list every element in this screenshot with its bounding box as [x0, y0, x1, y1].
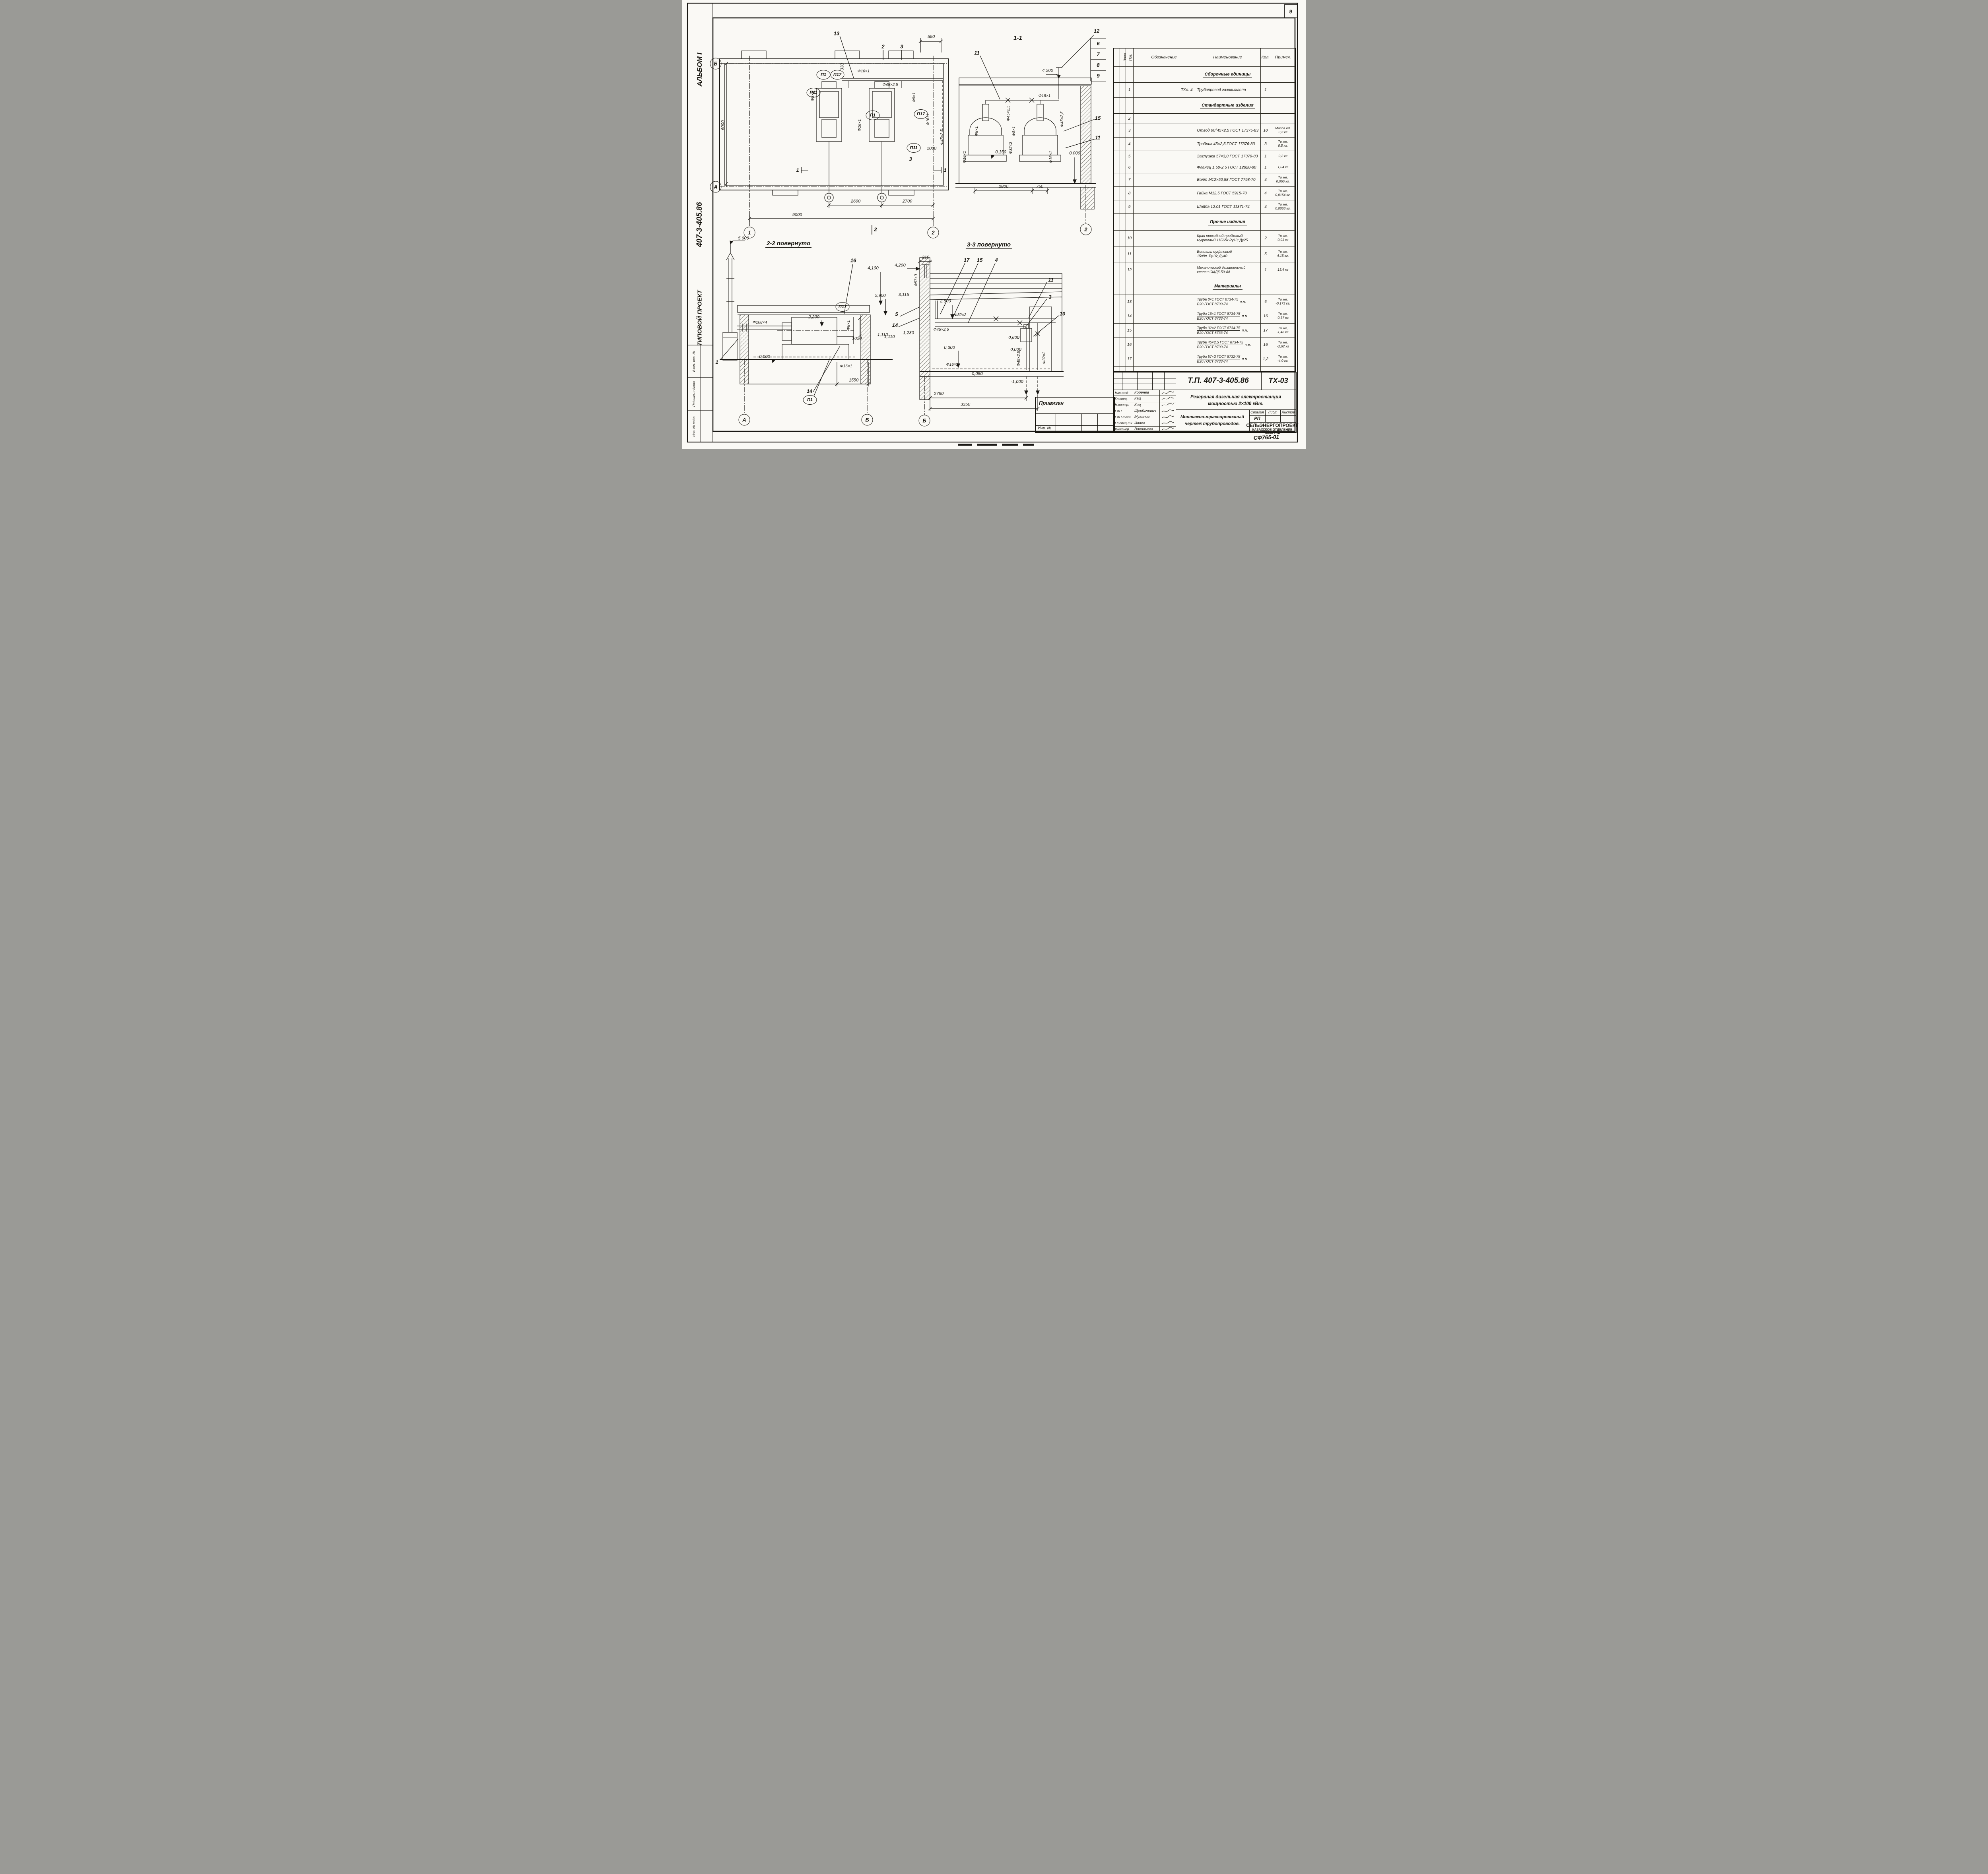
- spec-cell: Труба 32×2 ГОСТ 8734-75В20 ГОСТ 8733-74п…: [1195, 323, 1260, 338]
- signature: [1161, 409, 1175, 413]
- signature: [1161, 415, 1175, 419]
- signature: [1161, 396, 1175, 401]
- spec-cell: Тройник 45×2,5 ГОСТ 17376-83: [1195, 137, 1260, 151]
- callout-label: 13: [834, 31, 839, 36]
- scan-artifact: [1023, 444, 1034, 446]
- attached-label: Привязан: [1039, 400, 1064, 406]
- callout-label: 11: [1095, 135, 1101, 140]
- pipe-label: Ф18×1: [1039, 94, 1050, 98]
- spec-cell: 1: [1260, 162, 1271, 173]
- view-title: 1-1: [1012, 35, 1023, 42]
- pipe-label: Ф16×1: [1049, 151, 1053, 163]
- elevation-label: 3,115: [899, 293, 909, 297]
- callout-label: 11: [974, 50, 980, 56]
- elevation-label: 0,000: [759, 355, 770, 359]
- spec-cell: Механический дыхательныйклапан СМДК 50-4…: [1195, 262, 1260, 278]
- spec-cell: 3: [1260, 137, 1271, 151]
- dim-label: 750: [1036, 185, 1043, 189]
- spec-section-title: Стандартные изделия: [1195, 97, 1260, 113]
- dim-label: 2790: [934, 392, 944, 396]
- spec-section-title: Материалы: [1195, 278, 1260, 295]
- spec-cell: Болт М12×50,58 ГОСТ 7798-70: [1195, 173, 1260, 186]
- axis-marker: 2: [1080, 224, 1092, 235]
- spec-cell: Заглушка 57×3,0 ГОСТ 17379-83: [1195, 151, 1260, 162]
- spec-cell: Трубопровод газовыхлопа: [1195, 82, 1260, 97]
- callout-label: 14: [807, 389, 812, 394]
- spec-header: Поз.: [1126, 48, 1133, 66]
- elevation-label: 0,000: [1069, 151, 1080, 156]
- spec-header: Формат: [1114, 48, 1120, 66]
- unit-marker: П11: [907, 143, 921, 153]
- signature: [1161, 390, 1175, 395]
- spec-cell: 6: [1126, 162, 1133, 173]
- title-block: Т.П. 407-3-405.86 ТХ-03 Резервная дизель…: [1113, 372, 1297, 433]
- signature: [1161, 421, 1175, 425]
- project-title: Резервная дизельная электростанция: [1190, 395, 1281, 400]
- stage-header: Стадия: [1250, 410, 1264, 414]
- stamp-code: СФ765-01: [1253, 434, 1279, 440]
- spec-cell: 2: [1260, 230, 1271, 246]
- pipe-label: Ф8×1: [912, 93, 916, 103]
- sheet-code: ТХ-03: [1268, 377, 1288, 385]
- section-mark: 2: [881, 44, 884, 49]
- view-title: 3-3 повернуто: [966, 242, 1012, 249]
- pipe-label: Ф45×2,5: [1007, 106, 1011, 121]
- axis-marker: Б: [710, 58, 722, 70]
- doc-number: Т.П. 407-3-405.86: [1188, 376, 1248, 385]
- spec-cell: 0,2 кг: [1271, 151, 1295, 162]
- spec-cell: 4: [1260, 186, 1271, 200]
- pipe-label: Ф45×2,5: [934, 328, 949, 332]
- pipe-label: Ф16×1: [840, 365, 852, 369]
- axis-marker: А: [710, 181, 722, 193]
- callout-label: 4: [995, 258, 998, 263]
- pipe-label: Ф32×2: [954, 313, 966, 317]
- spec-cell: 17: [1126, 352, 1133, 366]
- dim-label: 3350: [961, 403, 970, 407]
- scan-artifact: [977, 444, 997, 446]
- spec-cell: 14: [1126, 309, 1133, 323]
- pipe-label: Ф8×1: [847, 320, 851, 330]
- callout-label: 5: [895, 312, 898, 317]
- spec-cell: ТХл. 4: [1133, 82, 1195, 97]
- pipe-label: Ф32×2: [1043, 352, 1046, 364]
- callout-label: 6: [1091, 38, 1106, 49]
- spec-cell: 10: [1126, 230, 1133, 246]
- axis-marker: 2: [928, 227, 939, 239]
- callout-stack: 6 7 8 9: [1091, 38, 1106, 81]
- spec-cell: 7: [1126, 173, 1133, 186]
- pipe-label: Ф16×1: [963, 151, 967, 163]
- spec-cell: 1: [1260, 151, 1271, 162]
- stage-value: РП: [1254, 416, 1260, 421]
- spec-cell: 16: [1260, 338, 1271, 352]
- spec-cell: То же,-1,48 кг.: [1271, 323, 1295, 338]
- call out-label: 1: [715, 360, 718, 365]
- unit-marker: П17: [831, 70, 845, 80]
- spec-cell: То же,-0,173 кг.: [1271, 295, 1295, 309]
- spec-cell: 12: [1126, 262, 1133, 278]
- unit-marker: П17: [914, 109, 928, 119]
- pipe-label: Ф108×4: [753, 321, 767, 325]
- spec-cell: То же,-2,62 кг: [1271, 338, 1295, 352]
- role-row: Н.контр.Кац: [1114, 402, 1176, 408]
- spec-cell: 16: [1260, 309, 1271, 323]
- spec-cell: Труба 8×1 ГОСТ 8734-75В20 ГОСТ 8733-74п.…: [1195, 295, 1260, 309]
- section-2-2-linework: [720, 241, 893, 414]
- spec-cell: 9: [1126, 200, 1133, 213]
- dim-label: 330: [841, 63, 845, 70]
- dim-label: 210: [922, 256, 929, 260]
- spec-cell: 6: [1260, 295, 1271, 309]
- spec-table: Формат Зона Поз. Обозначение Наименовани…: [1113, 48, 1296, 372]
- pipe-label: Ф32×2: [1009, 142, 1013, 154]
- role-row: Гл.спец.Кац: [1114, 396, 1176, 402]
- spec-header: Обозначение: [1133, 48, 1195, 66]
- pipe-label: Ф8×1: [975, 126, 979, 136]
- signature: [1161, 402, 1175, 407]
- elevation-label: 1,110: [884, 335, 895, 339]
- axis-marker: Б: [862, 414, 873, 426]
- spec-cell: То же,4,15 кг.: [1271, 246, 1295, 262]
- pipe-label: Ф45×2,5: [940, 130, 944, 145]
- stamp-row-label: Инв. № подл.: [692, 416, 696, 437]
- spec-cell: Фланец 1,50-2,5 ГОСТ 12820-80: [1195, 162, 1260, 173]
- project-number-label: 407-3-405.86: [695, 202, 704, 247]
- spec-cell: Шайба 12.01 ГОСТ 11371-74: [1195, 200, 1260, 213]
- spec-cell: Отвод 90°45×2,5 ГОСТ 17375-83: [1195, 124, 1260, 137]
- elevation-label: 0,600: [1008, 336, 1019, 340]
- callout-label: 10: [1060, 311, 1065, 316]
- roles-list: Нач.отдКоренев Гл.спец.Кац Н.контр.Кац Г…: [1114, 390, 1176, 432]
- axis-marker: Б: [919, 415, 930, 427]
- unit-marker: П1: [866, 111, 880, 120]
- section-mark: 3: [909, 157, 912, 162]
- role-row: ГИП техн.Муханов: [1114, 414, 1176, 420]
- spec-cell: 4: [1260, 200, 1271, 213]
- spec-cell: 11: [1126, 246, 1133, 262]
- spec-cell: То же,-4,0 кг.: [1271, 352, 1295, 366]
- page-number: 9: [1289, 9, 1292, 14]
- elevation-label: 4,200: [1042, 69, 1053, 73]
- unit-marker: П11: [807, 88, 821, 97]
- dim-label: 550: [928, 35, 935, 39]
- scan-artifact: [958, 444, 972, 446]
- elevation-label: -0,050: [970, 372, 982, 376]
- callout-label: 7: [1091, 49, 1106, 60]
- unit-marker: П17: [836, 302, 850, 312]
- album-label: АЛЬБОМ I: [696, 53, 704, 87]
- spec-cell: 4: [1126, 137, 1133, 151]
- pipe-label: Ф45×2,5: [883, 83, 898, 87]
- spec-cell: 8: [1126, 186, 1133, 200]
- role-row: ГИПЩербачевич: [1114, 408, 1176, 414]
- dim-label: 2800: [999, 185, 1008, 189]
- role-row: Гл.спец.тхИвлев: [1114, 420, 1176, 427]
- pipe-label: Ф16×1: [858, 70, 870, 74]
- unit-marker: П1: [803, 395, 817, 405]
- dim-label: 9000: [792, 213, 802, 217]
- elevation-label: -1,000: [1011, 380, 1023, 384]
- spec-cell: 5: [1260, 246, 1271, 262]
- axis-marker: А: [739, 414, 750, 426]
- spec-cell: 13,4 кг: [1271, 262, 1295, 278]
- callout-label: 17: [964, 258, 969, 263]
- spec-cell: То же,-0,37 кг.: [1271, 309, 1295, 323]
- spec-cell: То же,0,0154 кг.: [1271, 186, 1295, 200]
- plan-linework: [720, 36, 948, 235]
- callout-label: 15: [977, 258, 982, 263]
- callout-label: 8: [1091, 60, 1106, 70]
- pipe-label: Ф16×1: [858, 119, 862, 131]
- callout-label: 11: [1048, 277, 1054, 283]
- elevation-label: 2,900: [875, 294, 886, 298]
- elevation-label: 4,200: [895, 264, 906, 268]
- callout-label: 16: [850, 258, 856, 263]
- section-mark: 1: [944, 168, 946, 173]
- spec-section-title: Сборочные единицы: [1195, 66, 1260, 82]
- spec-cell: 1,2: [1260, 352, 1271, 366]
- spec-cell: Кран проходной пробковыймуфтовый 11Б6бк …: [1195, 230, 1260, 246]
- signature: [1161, 427, 1175, 431]
- callout-label: 15: [1095, 116, 1101, 121]
- callout-label: 12: [1094, 29, 1099, 34]
- org-name: СЕЛЬЭНЕРГОПРОЕКТ: [1246, 423, 1298, 428]
- spec-cell: 5: [1126, 151, 1133, 162]
- elevation-label: 2,200: [808, 315, 819, 320]
- elevation-label: 2,500: [940, 299, 951, 304]
- dim-label: 1550: [849, 378, 858, 383]
- view-title: 2-2 повернуто: [765, 241, 812, 248]
- spec-cell: То же,0,056 кг.: [1271, 173, 1295, 186]
- elevation-label: 0,150: [995, 150, 1006, 155]
- spec-cell: 1: [1126, 82, 1133, 97]
- spec-cell: 13: [1126, 295, 1133, 309]
- attached-block: Привязан Инв. №: [1035, 397, 1115, 433]
- spec-section-title: Прочие изделия: [1195, 213, 1260, 230]
- dim-label: 6000: [721, 120, 726, 130]
- callout-label: 3: [1048, 295, 1051, 300]
- section-mark: 2: [874, 227, 877, 232]
- drawing-title: чертеж трубопроводов.: [1185, 421, 1240, 426]
- spec-cell: 17: [1260, 323, 1271, 338]
- spec-cell: 3: [1126, 124, 1133, 137]
- section-3-3-linework: [899, 258, 1064, 415]
- spec-cell: 1: [1260, 262, 1271, 278]
- spec-cell: Труба 57×3 ГОСТ 8732-78В20 ГОСТ 8733-74п…: [1195, 352, 1260, 366]
- stamp-row-label: Подпись и дата: [692, 381, 696, 407]
- dim-label: 2600: [851, 200, 860, 204]
- dim-label: 1000: [927, 147, 936, 151]
- spec-cell: 15: [1126, 323, 1133, 338]
- pipe-label: Ф45×2,5: [1060, 112, 1064, 127]
- project-type-label: ТИПОВОЙ ПРОЕКТ: [697, 290, 703, 346]
- spec-cell: 4: [1260, 173, 1271, 186]
- spec-cell: То же,0,0063 кг.: [1271, 200, 1295, 213]
- spec-cell: То же,0,91 кг: [1271, 230, 1295, 246]
- spec-cell: 16: [1126, 338, 1133, 352]
- spec-cell: Масса ед.0,3 кг: [1271, 124, 1295, 137]
- pipe-label: Ф8×1: [1012, 126, 1016, 136]
- spec-cell: Гайка М12,5 ГОСТ 5915-70: [1195, 186, 1260, 200]
- stamp-row-label: Взам. инв. №: [692, 351, 696, 372]
- spec-header: Наименование: [1195, 48, 1260, 66]
- drawing-title: Монтажно-трассировочный: [1180, 415, 1244, 419]
- dim-label: 2700: [903, 200, 912, 204]
- pipe-label: Ф57×3: [914, 274, 918, 286]
- pipe-label: Ф45×2,5: [1017, 351, 1021, 367]
- spec-cell: 1,04 кг: [1271, 162, 1295, 173]
- sheets-header: Листов: [1282, 410, 1295, 414]
- role-row: ИнженерВасильева: [1114, 426, 1176, 432]
- spec-header: Кол.: [1260, 48, 1271, 66]
- sheet-header: Лист: [1268, 410, 1277, 414]
- spec-cell: Труба 45×2,5 ГОСТ 8734-75В20 ГОСТ 8733-7…: [1195, 338, 1260, 352]
- unit-marker: П1: [817, 70, 831, 80]
- inventory-label: Инв. №: [1038, 426, 1051, 431]
- spec-header: Зона: [1120, 48, 1126, 66]
- spec-cell: 1: [1260, 82, 1271, 97]
- elevation-label: 5,600: [738, 237, 749, 241]
- spec-cell: 10: [1260, 124, 1271, 137]
- section-mark: 3: [900, 44, 903, 49]
- elevation-label: 4,100: [868, 266, 879, 271]
- spec-cell: Труба 16×1 ГОСТ 8734-75В20 ГОСТ 8733-74п…: [1195, 309, 1260, 323]
- spec-cell: Вентиль муфтовый15ч8п. Ру16; Ду40: [1195, 246, 1260, 262]
- scan-artifact: [1002, 444, 1018, 446]
- spec-cell: То же,0,5 кг.: [1271, 137, 1295, 151]
- callout-label: 9: [1091, 70, 1106, 81]
- elevation-label: 0,300: [944, 346, 955, 350]
- pipe-label: Ф16×1: [946, 363, 958, 367]
- section-mark: 1: [796, 168, 799, 173]
- dim-label: 1020: [852, 337, 862, 341]
- project-title: мощностью 2×100 кВт.: [1208, 402, 1264, 406]
- elevation-label: 1,230: [903, 331, 914, 336]
- callout-label: 14: [892, 323, 898, 328]
- drawing-sheet: АЛЬБОМ I 407-3-405.86 ТИПОВОЙ ПРОЕКТ Вза…: [682, 0, 1306, 449]
- role-row: Нач.отдКоренев: [1114, 390, 1176, 396]
- spec-cell: 2: [1126, 113, 1133, 124]
- spec-header: Примеч.: [1271, 48, 1295, 66]
